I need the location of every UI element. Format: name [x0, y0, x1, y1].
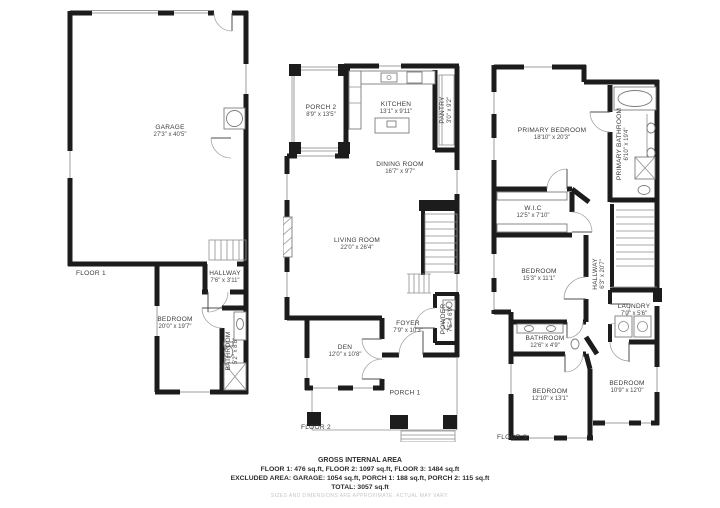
room-label-bedroom-153: BEDROOM 15'3" x 11'1": [521, 268, 556, 283]
room-label-bathroom-f3: BATHROOM 12'6" x 4'9": [525, 335, 564, 350]
room-label-porch2: PORCH 2 8'9" x 13'5": [306, 104, 337, 119]
area-summary-total: TOTAL: 3057 sq.ft: [0, 483, 720, 492]
room-label-dining-room: DINING ROOM 16'7" x 9'7": [376, 161, 424, 176]
floor-3-plan: PRIMARY BEDROOM 18'10" x 20'3" PRIMARY B…: [487, 52, 663, 448]
area-summary-excluded: EXCLUDED AREA: GARAGE: 1054 sq.ft, PORCH…: [0, 474, 720, 483]
area-summary-title: GROSS INTERNAL AREA: [0, 456, 720, 465]
room-label-garage: GARAGE 27'3" x 40'5": [154, 124, 187, 139]
floor-2-plan: PORCH 2 8'9" x 13'5" KITCHEN 13'1" x 9'1…: [283, 62, 463, 442]
room-label-pantry: PANTRY 3'0" x 9'2": [439, 96, 454, 123]
floor-2-walls: [283, 62, 463, 442]
floor-1-tag: FLOOR 1: [76, 270, 106, 277]
room-label-laundry: LAUNDRY 7'0" x 5'6": [618, 303, 651, 318]
room-label-primary-bedroom: PRIMARY BEDROOM 18'10" x 20'3": [518, 127, 587, 142]
room-label-wic: W.I.C 12'5" x 7'10": [517, 205, 550, 220]
room-label-den: DEN 12'0" x 10'8": [329, 344, 362, 359]
room-label-porch1: PORCH 1: [390, 389, 421, 397]
room-label-kitchen: KITCHEN 13'1" x 9'11": [380, 101, 412, 116]
area-summary-floors: FLOOR 1: 476 sq.ft, FLOOR 2: 1097 sq.ft,…: [0, 465, 720, 474]
area-summary: GROSS INTERNAL AREA FLOOR 1: 476 sq.ft, …: [0, 456, 720, 500]
floor-1-plan: GARAGE 27'3" x 40'5" HALLWAY 7'6" x 3'11…: [62, 6, 258, 398]
room-label-powder: POWDER 7'5" x 6'9": [440, 304, 455, 335]
room-label-bedroom-1210: BEDROOM 12'10" x 13'1": [532, 388, 568, 403]
room-label-primary-bathroom: PRIMARY BATHROOM 6'10" x 19'4": [616, 108, 631, 180]
room-label-bathroom-f1: BATHROOM 5'2" x 8'8": [225, 331, 240, 370]
room-label-hallway-f1: HALLWAY 7'6" x 3'11": [209, 270, 241, 285]
floorplan-canvas: GARAGE 27'3" x 40'5" HALLWAY 7'6" x 3'11…: [0, 0, 720, 508]
area-summary-disclaimer: SIZES AND DIMENSIONS ARE APPROXIMATE. AC…: [0, 492, 720, 500]
room-label-bedroom-109: BEDROOM 10'9" x 12'0": [609, 380, 644, 395]
room-label-bedroom-f1: BEDROOM 20'0" x 19'7": [157, 316, 192, 331]
floor-3-tag: FLOOR 3: [497, 434, 527, 441]
room-label-foyer: FOYER 7'9" x 10'3": [393, 320, 423, 335]
room-label-hallway-f3: HALLWAY 6'3" x 20'7": [592, 258, 607, 290]
floor-2-tag: FLOOR 2: [301, 424, 331, 431]
room-label-living-room: LIVING ROOM 22'0" x 26'4": [334, 237, 380, 252]
